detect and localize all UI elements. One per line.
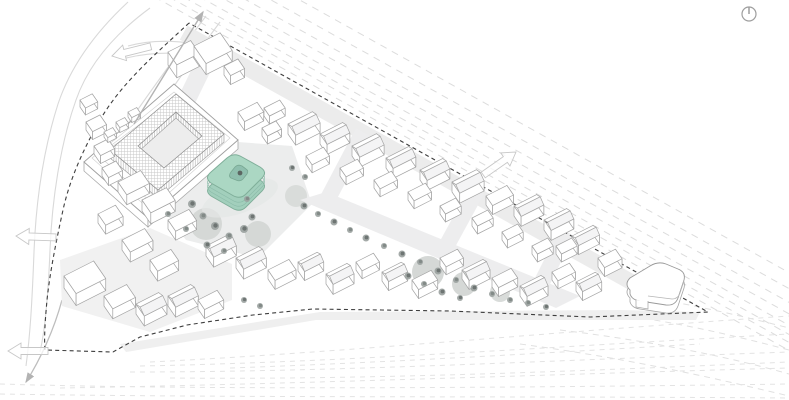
tree-crown bbox=[407, 274, 411, 278]
tree-crown bbox=[243, 298, 246, 301]
tree-crown bbox=[365, 236, 369, 240]
tree-crown bbox=[259, 304, 262, 307]
rounded-corner-building bbox=[627, 263, 684, 313]
tree-crown bbox=[509, 298, 512, 301]
tree-crown bbox=[401, 252, 405, 256]
tree-crown bbox=[333, 220, 337, 224]
site-plan-drawing bbox=[0, 0, 789, 400]
tree-crown bbox=[545, 305, 548, 308]
tree-crown bbox=[349, 228, 352, 231]
tree-crown bbox=[441, 290, 445, 294]
tree-crown bbox=[185, 227, 188, 230]
tree-crown bbox=[459, 296, 462, 299]
tree-crown bbox=[303, 204, 307, 208]
site-plan-canvas bbox=[0, 0, 789, 400]
tree-crown bbox=[473, 286, 477, 290]
tree-crown bbox=[190, 201, 194, 205]
tree-crown bbox=[423, 282, 426, 285]
exit-arrow-upper-right bbox=[479, 145, 521, 181]
tree-crown bbox=[242, 226, 246, 230]
courtyard-tree bbox=[238, 171, 243, 176]
tree-crown bbox=[167, 212, 170, 215]
tree-crown bbox=[206, 243, 210, 247]
tree-crown bbox=[437, 269, 441, 273]
tree-crown bbox=[202, 214, 206, 218]
tree-crown bbox=[419, 260, 422, 263]
railway-tracks-lower bbox=[0, 316, 789, 398]
tree-crown bbox=[317, 212, 320, 215]
tree-crown bbox=[213, 223, 217, 227]
tree-crown bbox=[291, 166, 294, 169]
tree-crown bbox=[527, 301, 530, 304]
tree-crown bbox=[304, 175, 307, 178]
tree-crown bbox=[491, 292, 494, 295]
tree-crown bbox=[383, 244, 386, 247]
tree-crown bbox=[251, 215, 255, 219]
north-indicator-icon bbox=[742, 7, 756, 21]
tree-crown bbox=[228, 234, 232, 238]
tree-crown bbox=[455, 278, 458, 281]
tree-crown bbox=[223, 249, 226, 252]
tree-crown bbox=[246, 197, 249, 200]
